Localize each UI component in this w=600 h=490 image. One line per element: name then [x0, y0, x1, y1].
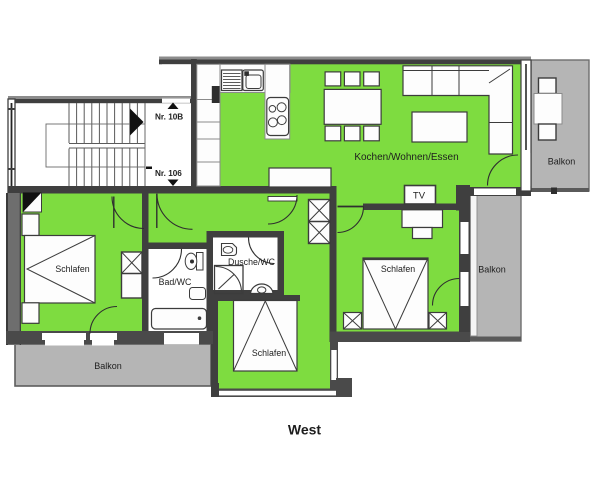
- svg-text:Balkon: Balkon: [548, 157, 576, 167]
- svg-text:Nr. 106: Nr. 106: [155, 169, 182, 178]
- svg-text:Nr. 10B: Nr. 10B: [155, 113, 183, 122]
- svg-text:Dusche/WC: Dusche/WC: [228, 257, 276, 267]
- svg-text:Balkon: Balkon: [478, 265, 506, 275]
- svg-text:TV: TV: [413, 191, 426, 202]
- svg-text:Schlafen: Schlafen: [55, 264, 89, 274]
- svg-text:Kochen/Wohnen/Essen: Kochen/Wohnen/Essen: [354, 152, 458, 163]
- svg-text:Balkon: Balkon: [94, 361, 122, 371]
- svg-text:Schlafen: Schlafen: [252, 348, 286, 358]
- svg-text:Schlafen: Schlafen: [381, 264, 415, 274]
- svg-text:Bad/WC: Bad/WC: [159, 277, 192, 287]
- svg-text:West: West: [288, 422, 322, 438]
